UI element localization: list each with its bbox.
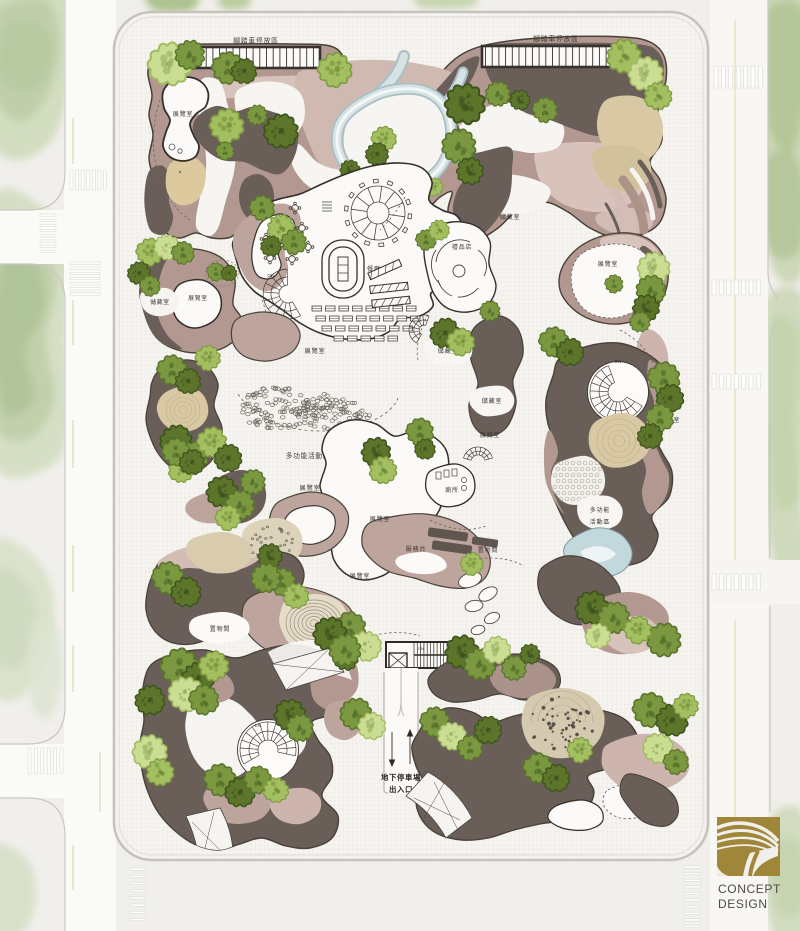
svg-text:ON: ON [615, 359, 622, 364]
svg-text:多功能: 多功能 [590, 506, 610, 514]
svg-text:腳踏車停放區: 腳踏車停放區 [533, 34, 579, 43]
svg-text:DN: DN [255, 723, 261, 728]
svg-text:ON: ON [267, 273, 274, 278]
svg-text:展覽室: 展覽室 [480, 431, 500, 439]
svg-text:展覽室: 展覽室 [598, 260, 618, 268]
svg-text:DESIGN: DESIGN [718, 897, 768, 911]
svg-text:置物間: 置物間 [210, 625, 230, 633]
svg-text:展覽室: 展覽室 [173, 110, 193, 118]
svg-text:置物間: 置物間 [478, 546, 498, 554]
svg-text:儲藏室: 儲藏室 [150, 298, 170, 306]
svg-text:地下停車場: 地下停車場 [381, 773, 421, 782]
svg-text:腳踏車停放區: 腳踏車停放區 [233, 36, 279, 45]
svg-text:禮品店: 禮品店 [452, 243, 472, 251]
svg-text:展覽室: 展覽室 [188, 294, 208, 302]
svg-text:ON: ON [418, 646, 424, 651]
svg-text:服務台: 服務台 [406, 545, 426, 553]
svg-text:展覽室: 展覽室 [305, 347, 326, 355]
svg-text:展覽室: 展覽室 [300, 484, 321, 492]
svg-text:廁所: 廁所 [445, 486, 459, 494]
svg-text:展覽室: 展覽室 [370, 515, 390, 523]
svg-text:CONCEPT: CONCEPT [718, 882, 781, 896]
svg-text:儲藏室: 儲藏室 [482, 397, 502, 405]
svg-text:儲藏室: 儲藏室 [500, 213, 520, 221]
svg-text:活動區: 活動區 [590, 518, 610, 526]
svg-text:展覽室: 展覽室 [350, 572, 370, 580]
